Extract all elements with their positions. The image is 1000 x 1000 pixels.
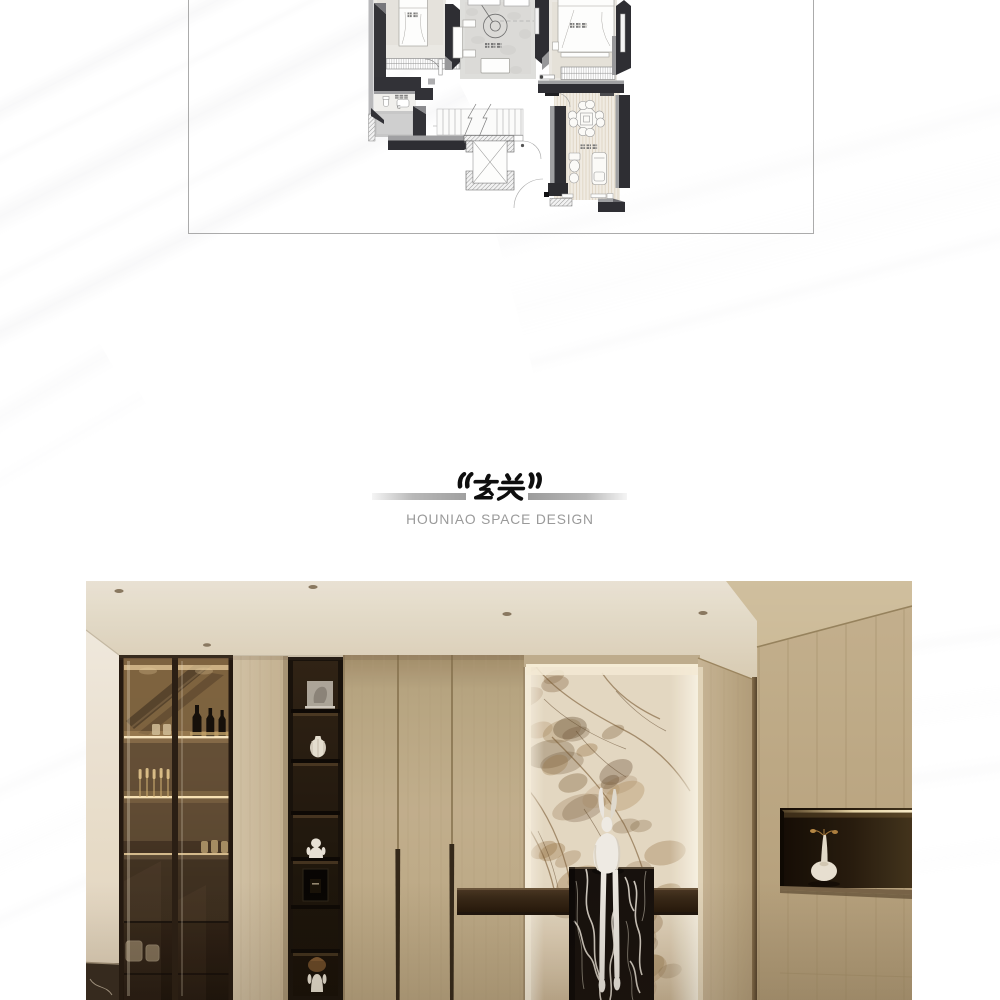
- svg-text:C: C: [397, 105, 401, 111]
